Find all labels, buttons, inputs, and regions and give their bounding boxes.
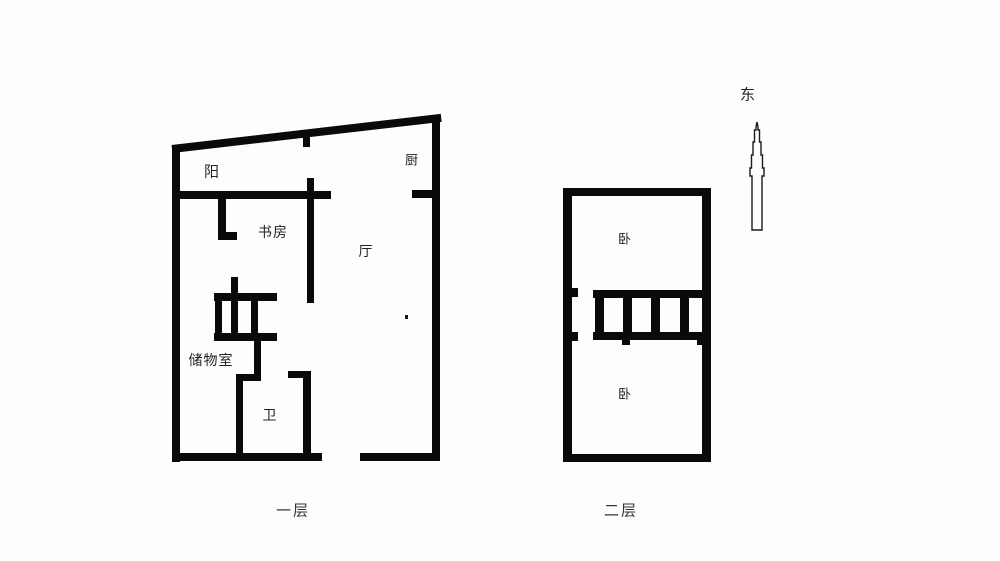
wall-bottom-wall [563, 454, 711, 462]
wall-stair-bar-2 [623, 290, 632, 340]
room-label-balcony: 阳 [204, 165, 220, 180]
wall-bottom-wall-left [172, 453, 322, 461]
wall-stair-nub-1 [622, 340, 630, 345]
compass-east-label: 东 [740, 88, 756, 103]
compass-arrow-icon [744, 118, 772, 232]
wall-stair-top-stub [231, 277, 238, 294]
wall-right-wall [702, 188, 711, 462]
room-label-bedroom-lower: 卧 [618, 389, 632, 402]
wall-left-wall-stub-1 [572, 288, 578, 297]
wall-study-hall-divider [307, 178, 314, 303]
room-label-bedroom-upper: 卧 [618, 234, 632, 247]
wall-stair-top-bar [214, 293, 277, 301]
wall-stair-bar-1 [215, 301, 222, 333]
wall-bath-right-wall-v [303, 371, 311, 457]
room-label-study: 书房 [258, 226, 288, 240]
room-label-bathroom: 卫 [263, 409, 278, 423]
wall-stair-bar-1 [595, 290, 604, 340]
wall-stair-bar-3 [651, 290, 660, 340]
wall-left-wall-stub-2 [572, 332, 578, 341]
floor2-caption: 二层 [604, 500, 638, 521]
wall-left-wall [563, 188, 572, 462]
wall-right-wall [432, 116, 440, 461]
wall-stair-nub-2 [697, 340, 705, 345]
plan-artifact-dot [405, 315, 408, 319]
wall-stair-bottom-bar [214, 333, 277, 341]
wall-stair-bar-3 [251, 301, 258, 333]
wall-bottom-wall-right [360, 453, 440, 461]
wall-top-wall [563, 188, 711, 196]
wall-stair-bar-2 [231, 301, 238, 333]
wall-bath-left-wall-v [236, 374, 243, 457]
room-label-living-room: 厅 [359, 245, 374, 259]
floor-plan-canvas: 阳 厨 书房 厅 储物室 卫 一层 卧 卧 二层 东 [0, 0, 1000, 561]
wall-kitchen-stub [412, 190, 433, 198]
room-label-kitchen: 厨 [405, 155, 419, 168]
wall-slant-stub [303, 130, 310, 147]
floor1-caption: 一层 [276, 500, 310, 521]
room-label-storage: 储物室 [189, 354, 234, 368]
wall-study-door-wall-foot [218, 232, 237, 240]
wall-stair-bar-4 [680, 290, 689, 340]
